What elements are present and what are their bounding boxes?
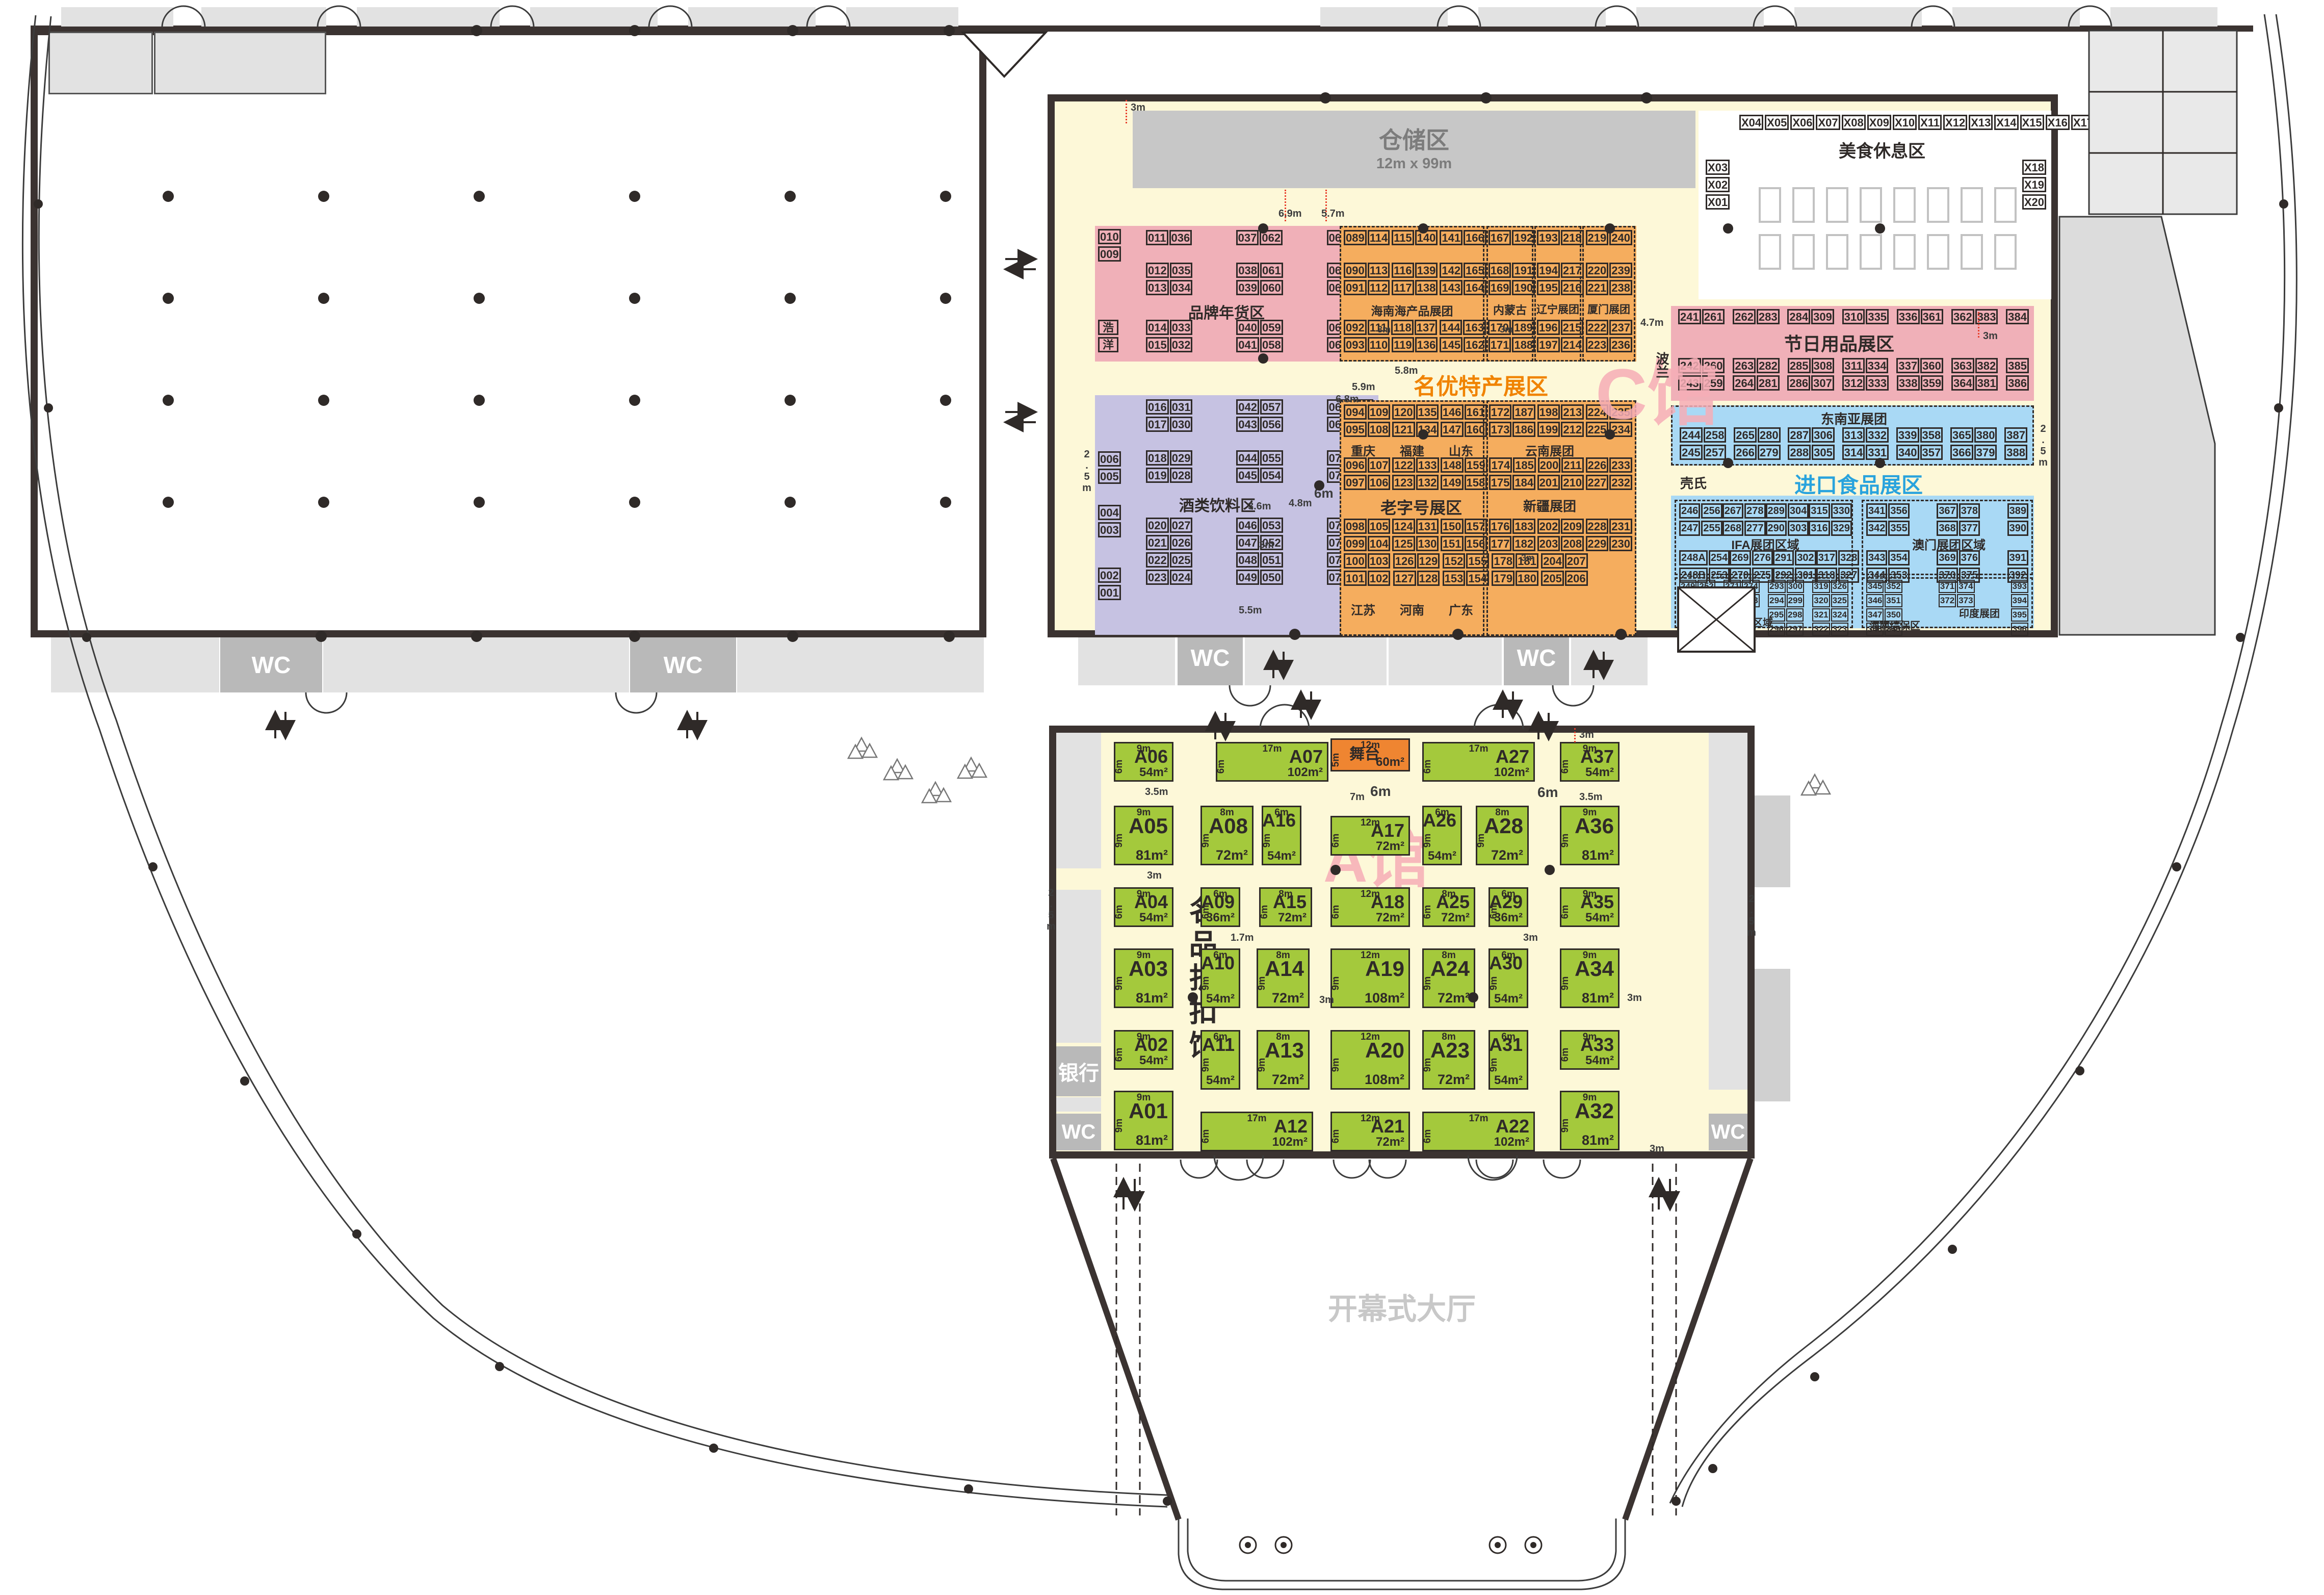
exhibition-floor-plan: WC WC WC WC 仓储区 12m x 99m X04X05X06X07X0… [0,0,2324,1595]
decoration-overlay [0,0,2324,1595]
tree-icons [848,738,1830,803]
